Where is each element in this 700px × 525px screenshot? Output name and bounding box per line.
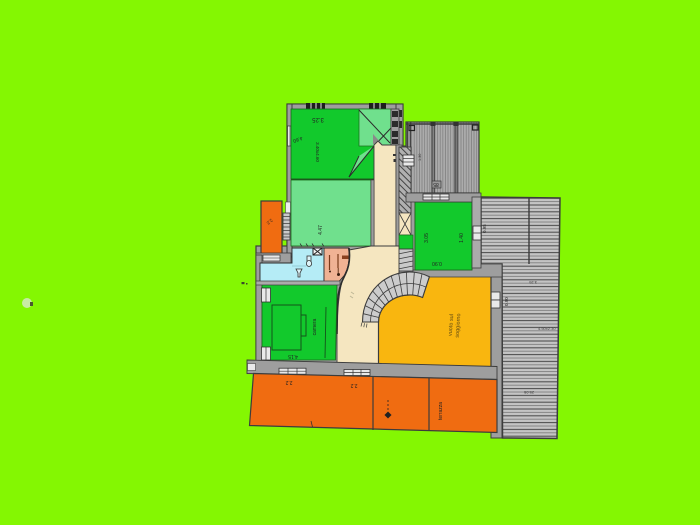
- svg-text:2.2: 2.2: [350, 382, 357, 388]
- svg-text:1.30: 1.30: [418, 154, 422, 161]
- svg-text:85: 85: [433, 181, 439, 187]
- svg-text:25.05: 25.05: [523, 390, 534, 395]
- svg-text:3.25: 3.25: [528, 280, 537, 285]
- svg-text:0.90: 0.90: [432, 260, 442, 266]
- svg-text:camera: camera: [312, 318, 318, 335]
- svg-text:3.25: 3.25: [312, 116, 324, 122]
- svg-text:3.05: 3.05: [424, 233, 430, 243]
- svg-text:0.95: 0.95: [482, 224, 487, 233]
- svg-text:3.40x4.60: 3.40x4.60: [315, 142, 320, 162]
- svg-text:terrazza: terrazza: [438, 402, 444, 420]
- svg-text:0.90: 0.90: [504, 297, 509, 306]
- svg-text:2.2: 2.2: [285, 379, 292, 385]
- svg-text:4.15: 4.15: [288, 353, 298, 359]
- svg-text:1.40: 1.40: [459, 233, 465, 243]
- svg-text:4.47: 4.47: [318, 225, 324, 235]
- svg-text:4.50x2.30: 4.50x2.30: [538, 326, 556, 331]
